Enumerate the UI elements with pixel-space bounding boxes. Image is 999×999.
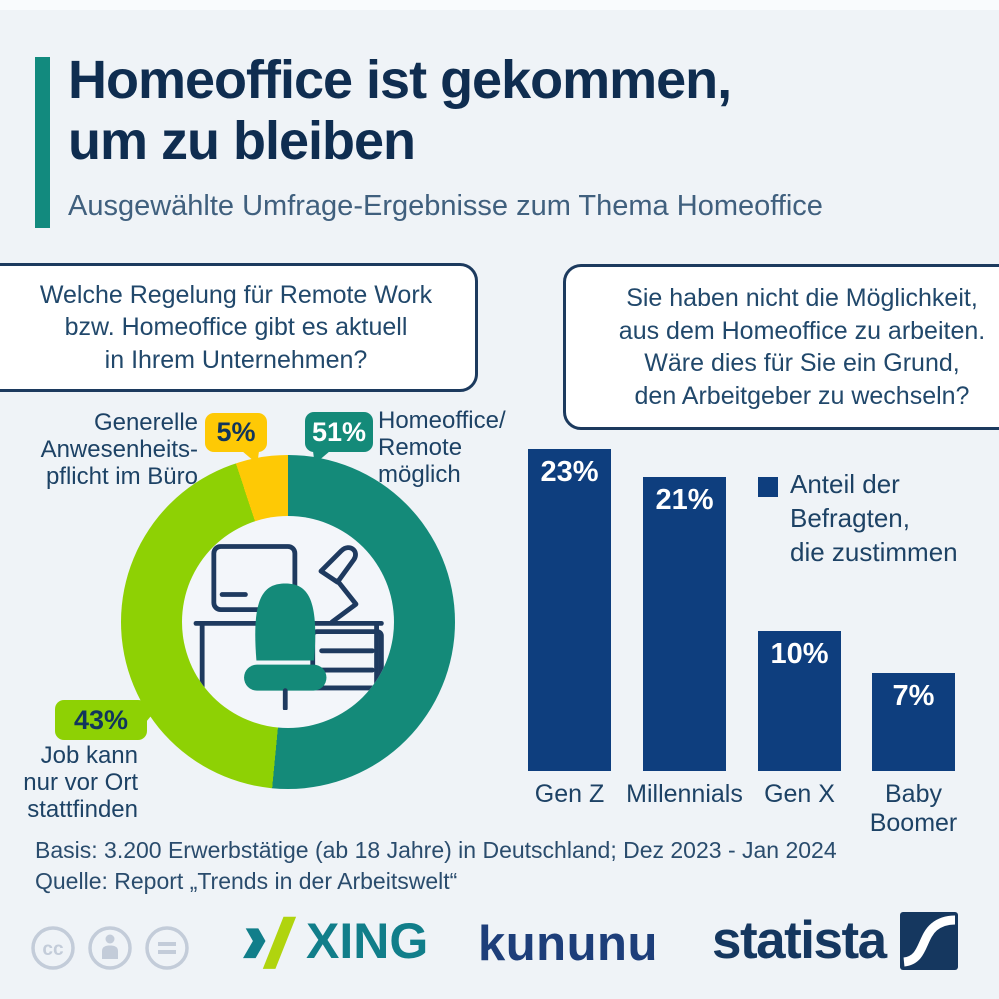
attribution-person-icon xyxy=(87,925,133,971)
xing-wordmark: XING xyxy=(306,912,428,970)
footer-source: Quelle: Report „Trends in der Arbeitswel… xyxy=(35,868,457,895)
legend-swatch xyxy=(758,477,778,497)
equals-no-derivatives-icon xyxy=(144,925,190,971)
bar-value-label: 23% xyxy=(528,456,611,489)
bar-gen-z: 23% xyxy=(528,449,611,771)
bar-value-label: 7% xyxy=(872,680,955,713)
donut-label-homeoffice: Homeoffice/ Remote möglich xyxy=(378,407,506,488)
donut-label-onsite-only: Job kann nur vor Ort stattfinden xyxy=(23,742,138,823)
legend-label: Anteil der Befragten, die zustimmen xyxy=(790,468,958,569)
donut-center xyxy=(182,516,394,728)
bar-baby-boomer: 7% xyxy=(872,673,955,771)
bar-category-label: Baby Boomer xyxy=(839,780,989,838)
statista-icon xyxy=(900,912,958,970)
donut-tag-51-percent-value: 51% xyxy=(312,417,366,448)
question-bubble-left: Welche Regelung für Remote Work bzw. Hom… xyxy=(0,263,478,392)
donut-tag-43-percent: 43% xyxy=(55,700,147,740)
xing-icon xyxy=(243,911,297,971)
top-strip xyxy=(0,0,999,10)
cc-license-icon: cc xyxy=(30,925,76,971)
donut-tag-51-percent: 51% xyxy=(305,412,373,452)
donut-label-office-duty: Generelle Anwesenheits- pflicht im Büro xyxy=(41,409,198,490)
bar-millennials: 21% xyxy=(643,477,726,771)
page-title: Homeoffice ist gekommen, um zu bleiben xyxy=(68,50,968,172)
creative-commons-icons: cc xyxy=(30,925,190,971)
donut-tag-43-percent-value: 43% xyxy=(74,705,128,736)
footer-basis: Basis: 3.200 Erwerbstätige (ab 18 Jahre)… xyxy=(35,837,837,864)
bar-gen-x: 10% xyxy=(758,631,841,771)
svg-text:cc: cc xyxy=(42,939,64,960)
bar-value-label: 10% xyxy=(758,638,841,671)
donut-tag-5-percent-value: 5% xyxy=(216,417,255,448)
page-subtitle: Ausgewählte Umfrage-Ergebnisse zum Thema… xyxy=(68,190,823,223)
kununu-logo: kununu xyxy=(478,916,658,972)
xing-logo: XING xyxy=(243,911,428,971)
bar-value-label: 21% xyxy=(643,484,726,517)
desk-workplace-icon xyxy=(185,534,391,710)
statista-wordmark: statista xyxy=(712,910,886,971)
title-accent-bar xyxy=(35,57,50,228)
infographic-canvas: Homeoffice ist gekommen, um zu bleiben A… xyxy=(0,0,999,999)
statista-logo: statista xyxy=(712,910,958,971)
question-bubble-right: Sie haben nicht die Möglichkeit, aus dem… xyxy=(563,264,999,430)
donut-tag-5-percent: 5% xyxy=(205,413,267,452)
